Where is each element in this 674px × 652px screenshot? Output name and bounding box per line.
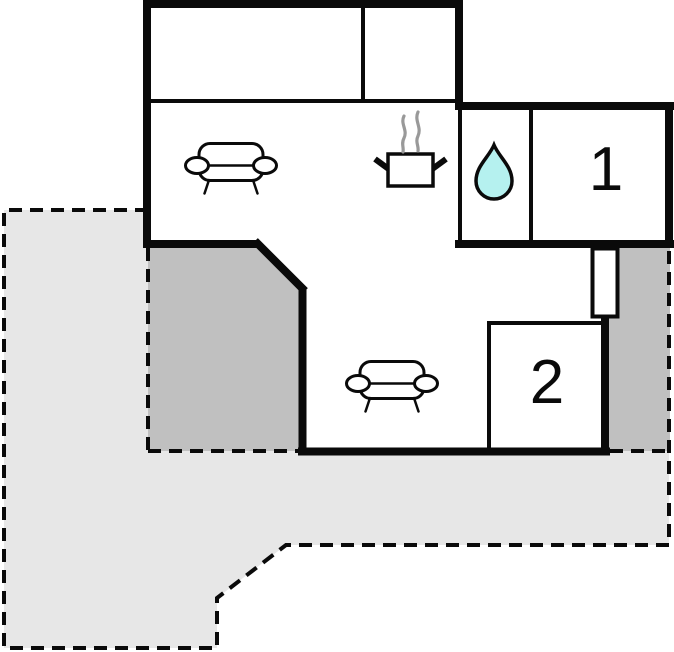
floor-plan-page: 1 2	[0, 0, 674, 652]
lower-room	[255, 239, 609, 455]
door	[593, 249, 618, 317]
annex-room	[143, 0, 463, 103]
terrace-dark-left	[148, 244, 304, 451]
floor-plan: 1 2	[0, 0, 674, 652]
pot-body	[388, 154, 433, 186]
room-1-label: 1	[589, 135, 623, 204]
room-2-label: 2	[530, 348, 564, 417]
